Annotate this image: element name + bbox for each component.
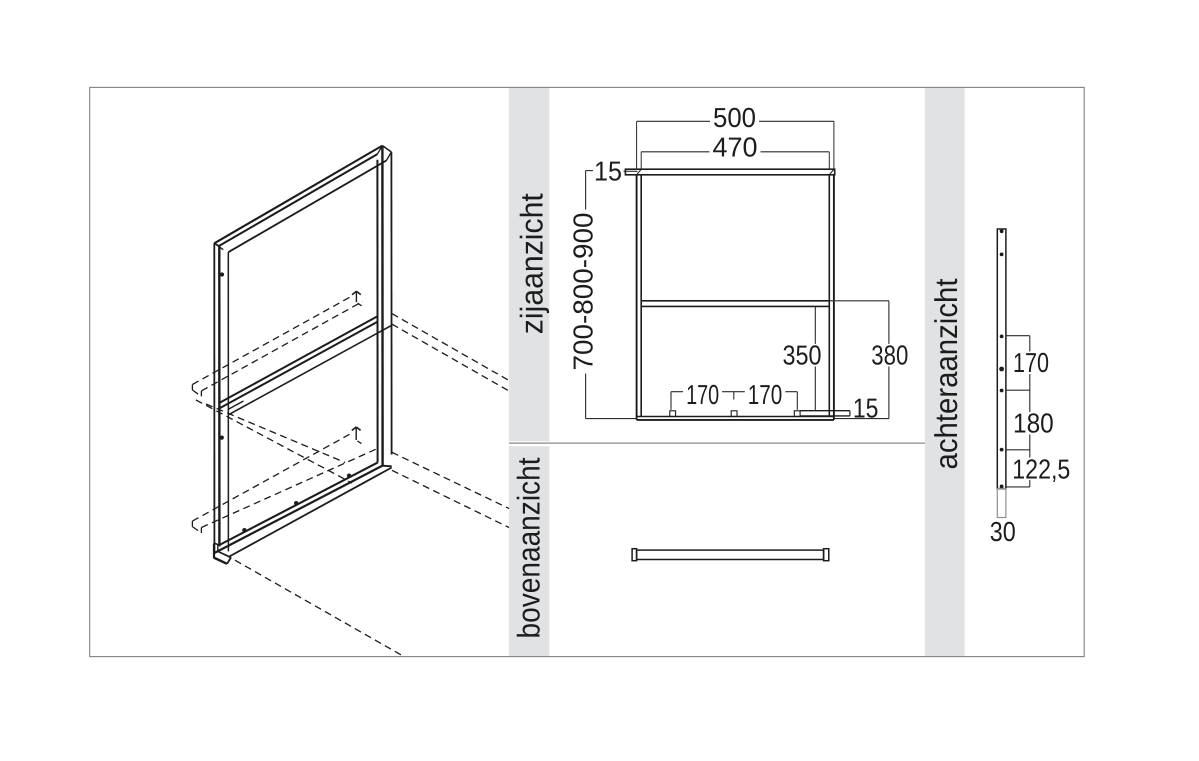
svg-text:180: 180 <box>1013 408 1054 439</box>
svg-text:30: 30 <box>990 516 1016 547</box>
svg-text:zijaanzicht: zijaanzicht <box>514 193 550 334</box>
svg-text:15: 15 <box>853 393 879 424</box>
svg-text:15: 15 <box>594 156 622 187</box>
svg-text:500: 500 <box>713 102 756 133</box>
svg-text:122,5: 122,5 <box>1012 453 1070 484</box>
svg-text:380: 380 <box>871 340 908 371</box>
svg-text:170: 170 <box>1013 347 1049 378</box>
svg-text:bovenaanzicht: bovenaanzicht <box>511 457 547 638</box>
svg-text:700-800-900: 700-800-900 <box>568 213 599 371</box>
svg-text:350: 350 <box>783 340 822 371</box>
svg-text:achteraanzicht: achteraanzicht <box>928 278 964 469</box>
svg-text:170: 170 <box>748 379 783 410</box>
svg-text:170: 170 <box>686 379 719 410</box>
svg-text:470: 470 <box>713 132 758 163</box>
